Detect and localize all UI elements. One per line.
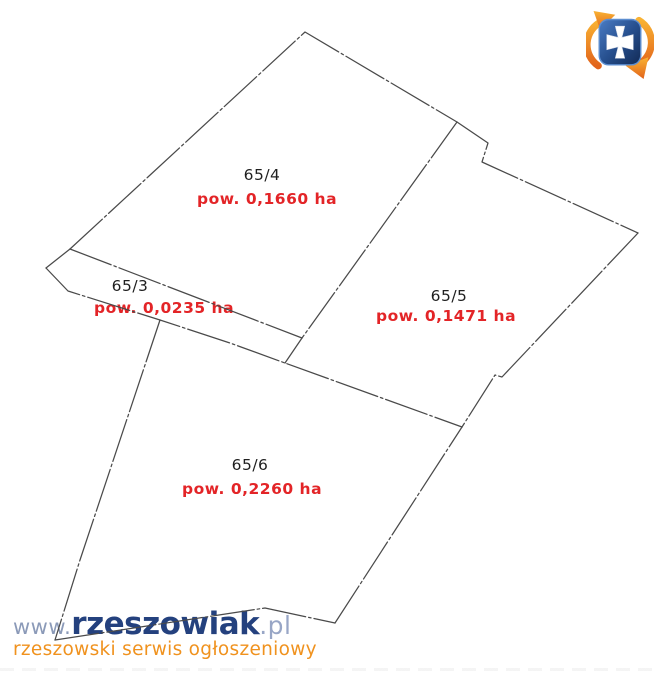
watermark-tld: .pl — [259, 613, 291, 638]
parcel-boundaries — [0, 0, 660, 675]
parcel-65-5-area: pow. 0,1471 ha — [376, 307, 516, 325]
rzeszowiak-logo — [586, 5, 654, 85]
boundary-65-4-65-5 — [302, 122, 457, 338]
boundary-65-6-left — [55, 320, 160, 640]
watermark-url: www.rzeszowiak.pl — [13, 609, 317, 640]
boundary-65-5-right — [462, 233, 638, 427]
parcel-65-6-id: 65/6 — [232, 456, 269, 474]
boundary-65-5-top — [457, 122, 638, 233]
logo-shield-icon — [599, 20, 641, 65]
boundary-65-3-top — [70, 249, 302, 338]
scan-artifact-strip — [0, 668, 660, 671]
parcel-65-3-id: 65/3 — [112, 277, 149, 295]
site-watermark: www.rzeszowiak.pl rzeszowski serwis ogło… — [13, 609, 317, 660]
parcel-65-5-id: 65/5 — [431, 287, 468, 305]
parcel-65-4-id: 65/4 — [244, 166, 281, 184]
boundary-65-3-right-cap — [285, 338, 302, 363]
parcel-65-4-area: pow. 0,1660 ha — [197, 190, 337, 208]
cadastral-map-page: www.rzeszowiak.pl rzeszowski serwis ogło… — [0, 0, 660, 675]
watermark-www: www. — [13, 617, 71, 638]
boundary-65-6-right — [335, 427, 462, 623]
parcel-65-3-area: pow. 0,0235 ha — [94, 299, 234, 317]
boundary-65-4-top — [70, 32, 457, 249]
watermark-brand: rzeszowiak — [71, 609, 259, 640]
boundary-65-3-bottom — [46, 268, 462, 427]
watermark-tagline: rzeszowski serwis ogłoszeniowy — [13, 641, 317, 660]
parcel-65-6-area: pow. 0,2260 ha — [182, 480, 322, 498]
boundary-65-3-left-cap — [46, 249, 70, 268]
